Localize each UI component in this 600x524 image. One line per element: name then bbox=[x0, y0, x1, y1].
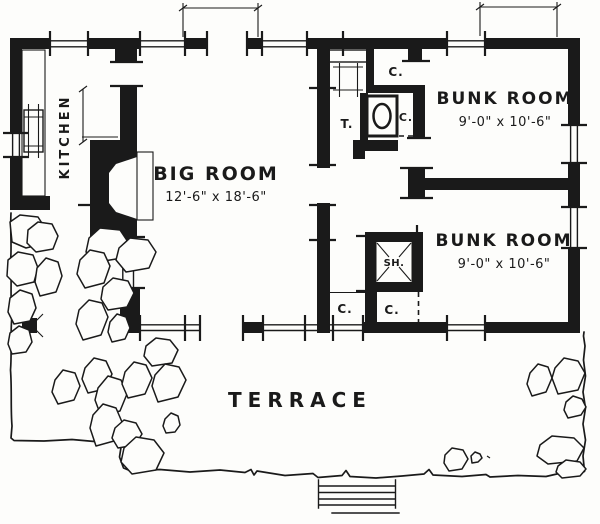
kitchen-counter bbox=[22, 50, 45, 196]
kitchen-label: KITCHEN bbox=[58, 95, 73, 180]
floor-plan-sheet: KITCHEN BIG ROOM 12'-6" x 18'-6" BUNK RO… bbox=[0, 0, 600, 524]
dimension-lines bbox=[179, 2, 561, 37]
bunk-room-top-dimensions: 9'-0" x 10'-6" bbox=[459, 115, 552, 130]
shower-label: SH. bbox=[384, 258, 405, 269]
terrace-steps bbox=[319, 480, 400, 513]
closet-hall-right-label: C. bbox=[384, 303, 399, 317]
toilet bbox=[367, 96, 397, 136]
closet-bath-side-label: C. bbox=[399, 111, 413, 124]
terrace-label: TERRACE bbox=[228, 388, 372, 412]
hearth bbox=[137, 152, 153, 220]
bathroom-sink bbox=[329, 50, 367, 97]
floor-plan-drawing: KITCHEN BIG ROOM 12'-6" x 18'-6" BUNK RO… bbox=[0, 0, 600, 524]
fireplace bbox=[78, 86, 153, 237]
bunk-room-bottom-dimensions: 9'-0" x 10'-6" bbox=[458, 257, 551, 272]
kitchen-sink bbox=[24, 104, 43, 158]
closet-bath-top-label: C. bbox=[388, 65, 403, 79]
terrace-stones bbox=[7, 215, 586, 478]
toilet-label: T. bbox=[341, 117, 354, 131]
closet-hall-left-label: C. bbox=[337, 302, 352, 316]
bunk-room-top-label: BUNK ROOM bbox=[437, 89, 574, 109]
big-room-dimensions: 12'-6" x 18'-6" bbox=[165, 190, 267, 205]
bunk-room-bottom-label: BUNK ROOM bbox=[436, 231, 573, 251]
big-room-label: BIG ROOM bbox=[153, 163, 279, 185]
